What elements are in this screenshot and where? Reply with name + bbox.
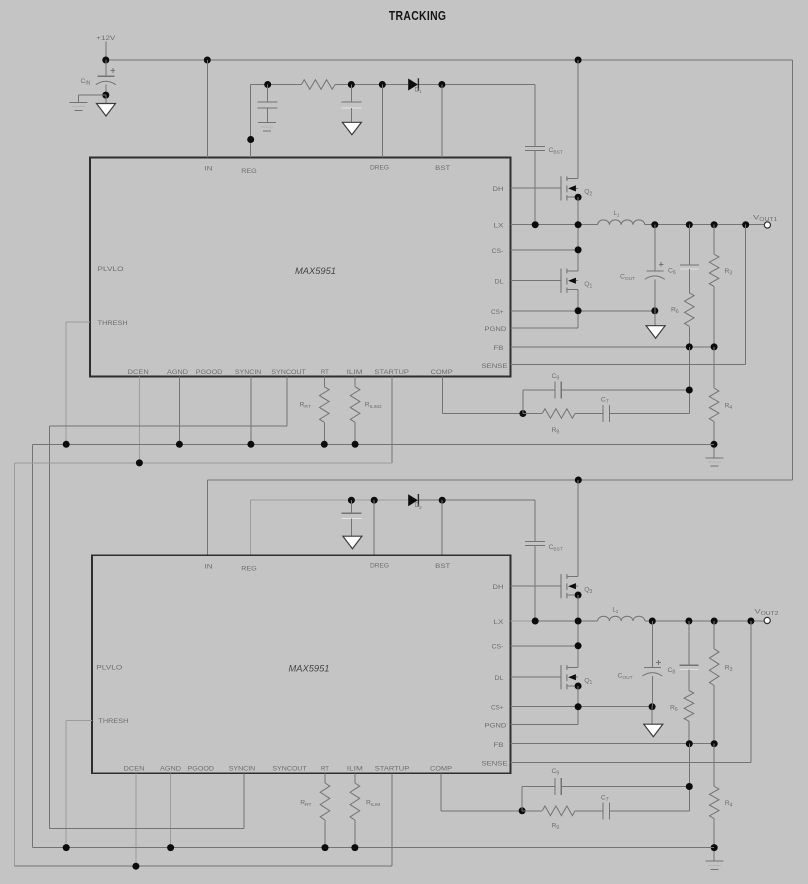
svg-text:IN: IN <box>205 166 213 173</box>
svg-text:DCEN: DCEN <box>128 369 149 376</box>
svg-text:LX: LX <box>494 619 505 626</box>
svg-text:PLVLO: PLVLO <box>98 266 124 273</box>
svg-text:CS-: CS- <box>492 644 504 651</box>
svg-text:MAX5951: MAX5951 <box>289 664 330 674</box>
svg-text:SYNCIN: SYNCIN <box>229 765 256 772</box>
svg-text:STARTUP: STARTUP <box>374 369 409 376</box>
svg-text:COMP: COMP <box>431 369 453 376</box>
svg-text:THRESH: THRESH <box>98 320 128 327</box>
svg-text:SYNCOUT: SYNCOUT <box>271 369 306 376</box>
svg-text:TRACKING: TRACKING <box>389 8 447 23</box>
svg-text:RT: RT <box>321 765 329 772</box>
svg-text:SENSE: SENSE <box>482 363 509 370</box>
svg-text:D2: D2 <box>415 503 422 510</box>
svg-text:PGND: PGND <box>484 326 506 333</box>
svg-text:PLVLO: PLVLO <box>96 664 122 671</box>
svg-text:SENSE: SENSE <box>482 761 509 768</box>
svg-text:REG: REG <box>241 168 257 175</box>
svg-text:DH: DH <box>493 186 504 193</box>
svg-text:THRESH: THRESH <box>98 718 128 725</box>
svg-text:DL: DL <box>495 675 504 682</box>
svg-text:SYNCIN: SYNCIN <box>235 369 262 376</box>
svg-text:+12V: +12V <box>96 35 116 42</box>
svg-text:LX: LX <box>494 223 505 230</box>
svg-text:DCEN: DCEN <box>124 765 145 772</box>
svg-text:PGOOD: PGOOD <box>196 369 223 376</box>
svg-text:AGND: AGND <box>167 369 188 376</box>
svg-text:MAX5951: MAX5951 <box>295 266 336 276</box>
svg-text:DREG: DREG <box>370 563 389 570</box>
svg-text:RT: RT <box>321 369 329 376</box>
svg-text:FB: FB <box>494 742 505 749</box>
svg-text:REG: REG <box>241 566 257 573</box>
svg-text:D1: D1 <box>415 88 422 95</box>
svg-text:SYNCOUT: SYNCOUT <box>272 765 307 772</box>
svg-text:CS+: CS+ <box>491 705 504 712</box>
svg-text:STARTUP: STARTUP <box>375 765 410 772</box>
svg-text:ILIM: ILIM <box>347 369 363 376</box>
svg-text:CS+: CS+ <box>491 309 504 316</box>
svg-text:BST: BST <box>435 165 450 172</box>
svg-text:BST: BST <box>435 563 450 570</box>
svg-text:PGOOD: PGOOD <box>188 765 215 772</box>
svg-text:ILIM: ILIM <box>347 765 363 772</box>
svg-text:CS-: CS- <box>492 248 504 255</box>
svg-text:FB: FB <box>494 345 505 352</box>
svg-text:AGND: AGND <box>160 765 181 772</box>
svg-text:L1: L1 <box>614 211 620 218</box>
svg-text:DH: DH <box>493 584 504 591</box>
svg-text:L2: L2 <box>613 607 619 614</box>
svg-text:COMP: COMP <box>430 765 452 772</box>
svg-text:IN: IN <box>205 563 213 570</box>
svg-text:PGND: PGND <box>484 722 506 729</box>
svg-text:DREG: DREG <box>370 165 389 172</box>
svg-text:DL: DL <box>495 279 504 286</box>
